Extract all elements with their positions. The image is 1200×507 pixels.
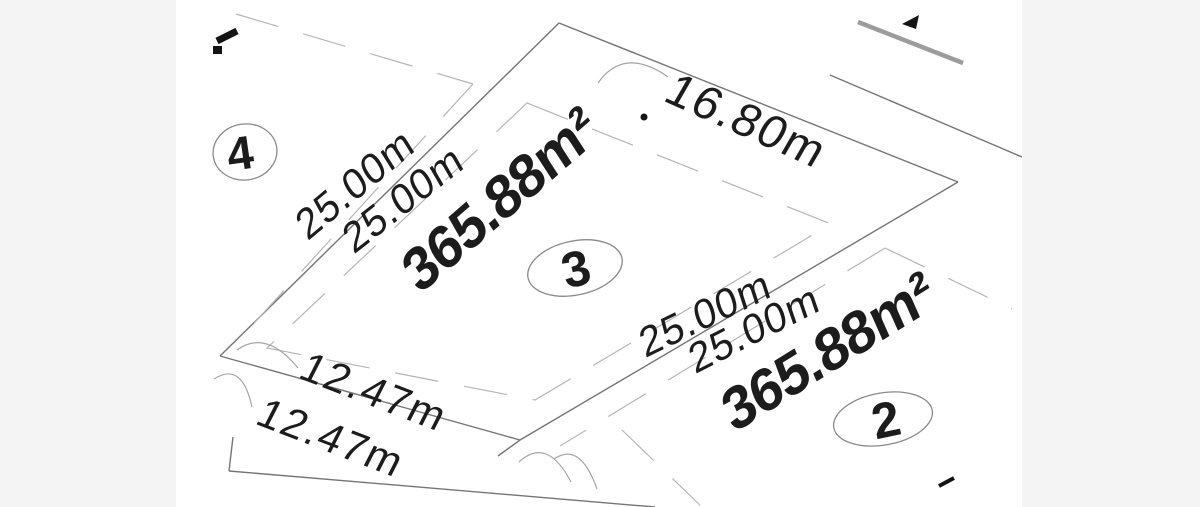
lot2-frontage-dashes bbox=[622, 430, 700, 505]
survey-point-dot bbox=[641, 114, 648, 121]
left-letterbox bbox=[0, 0, 176, 507]
clipped-fragment-top-right bbox=[902, 15, 919, 29]
arc-near-rear-dimension bbox=[598, 63, 668, 83]
arc-street-corner-2 bbox=[554, 454, 597, 489]
clipped-fragment-top-left-dot bbox=[213, 46, 222, 54]
arc-front-corner-2 bbox=[214, 374, 252, 407]
lot4-setback-rear bbox=[236, 14, 473, 84]
clipped-fragment-bottom-right bbox=[939, 478, 954, 486]
plan-canvas: 16.80m 25.00m 25.00m 25.00m 25.00m 12.47… bbox=[0, 0, 1200, 507]
plan-linework bbox=[0, 0, 1200, 507]
arc-street-corner-1 bbox=[519, 453, 571, 482]
clipped-fragment-top-left-dash bbox=[217, 31, 237, 41]
right-letterbox bbox=[1022, 0, 1200, 507]
street-line bbox=[229, 471, 655, 507]
road-edge-thick-line bbox=[858, 22, 963, 63]
road-reserve-line bbox=[830, 75, 1022, 157]
frontage-connector-line bbox=[229, 437, 233, 471]
arc-front-corner-1 bbox=[237, 343, 298, 368]
